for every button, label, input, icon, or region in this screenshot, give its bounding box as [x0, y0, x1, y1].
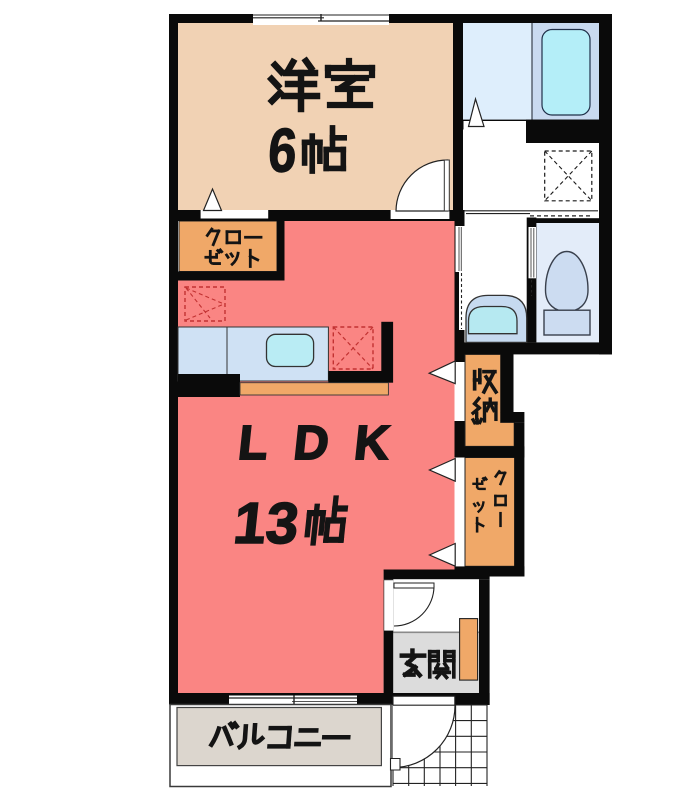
svg-text:LDK: LDK — [236, 416, 418, 470]
svg-text:6: 6 — [266, 117, 299, 186]
svg-text:13: 13 — [231, 491, 302, 556]
